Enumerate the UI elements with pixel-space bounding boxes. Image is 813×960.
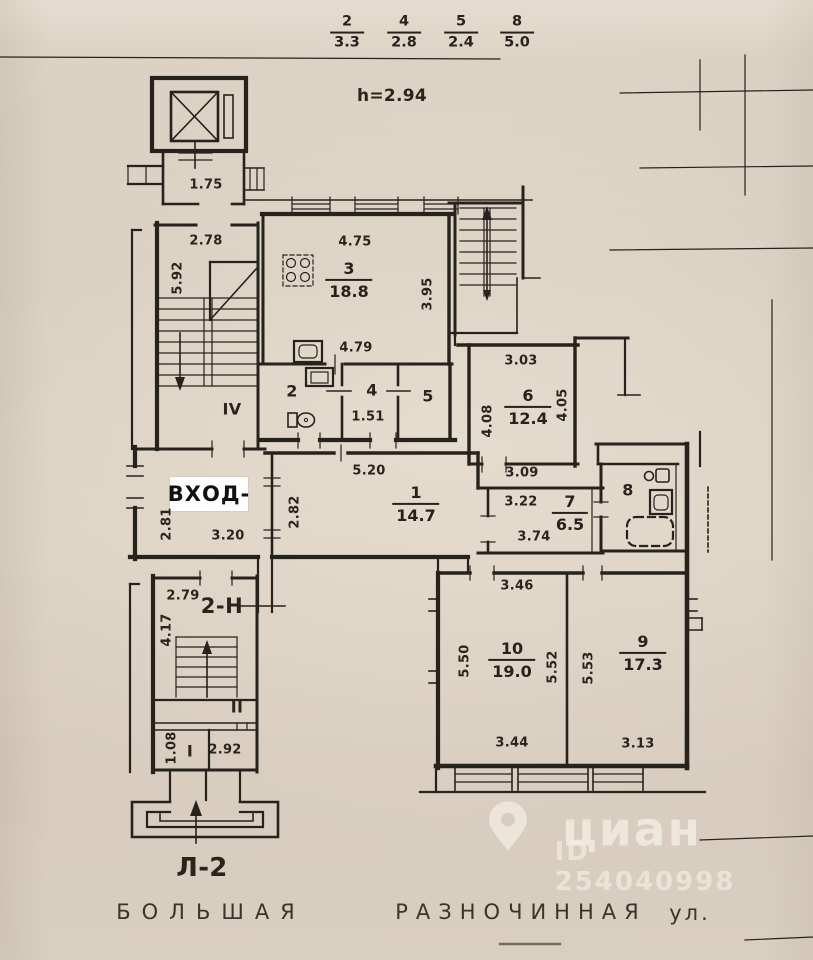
dim-room6-bottom: 3.09: [505, 466, 538, 481]
dim-room3-top: 4.75: [338, 235, 371, 250]
dim-room6-top: 3.03: [504, 354, 537, 369]
room6-number: 6: [504, 387, 551, 406]
apartment-fraction-3: 5 2.4: [444, 15, 478, 52]
rooms-9-10: [420, 566, 705, 792]
room3-area: 18.8: [325, 279, 372, 301]
floorplan-drawing: [0, 0, 813, 960]
room7-number: 7: [552, 493, 588, 512]
room8-number: 8: [622, 481, 633, 500]
rooms-2-4-5: [261, 364, 455, 448]
dim-main-stair-width: 2.78: [189, 234, 222, 249]
dim-service-stair-left: 4.17: [160, 613, 175, 646]
room10-number: 10: [488, 640, 535, 659]
room1-number: 1: [392, 484, 439, 503]
entrance-hall-walls: [127, 441, 478, 612]
dim-hall-top: 5.20: [352, 464, 385, 479]
dim-room4: 1.51: [351, 410, 384, 425]
top-window-band: [246, 197, 532, 214]
dim-room10-bottom: 3.44: [495, 736, 528, 751]
fraction-numerator: 8: [500, 15, 534, 32]
dim-room3-right: 3.95: [421, 277, 436, 310]
porch-steps: [132, 800, 278, 843]
elevator-shaft: [152, 78, 246, 168]
room1-label: 1 14.7: [392, 484, 439, 524]
dim-room9-bottom: 3.13: [621, 737, 654, 752]
room3-number: 3: [325, 260, 372, 279]
room7-label: 7 6.5: [552, 493, 588, 533]
room5-number: 5: [422, 387, 433, 406]
floor-mark-ii: II: [231, 698, 244, 717]
room9-number: 9: [619, 633, 666, 652]
dim-room7-top: 3.22: [504, 495, 537, 510]
dim-room10-left: 5.50: [458, 644, 473, 677]
porch-label-l2: Л-2: [176, 853, 227, 883]
fraction-denominator: 3.3: [330, 32, 364, 52]
dim-entry-i-width: 2.92: [208, 743, 241, 758]
dim-entry-i-depth: 1.08: [165, 731, 180, 764]
street-name-part2: РАЗНОЧИННАЯ: [395, 900, 646, 924]
fraction-numerator: 2: [330, 15, 364, 32]
floor-mark-iv: IV: [223, 400, 242, 419]
left-facade-lines: [130, 230, 141, 772]
dim-lift-lobby: 1.75: [189, 178, 222, 193]
apartment-fraction-2: 4 2.8: [387, 15, 421, 52]
dim-room7-bottom: 3.74: [517, 530, 550, 545]
main-stairwell: [155, 223, 258, 449]
street-name-part1: БОЛЬШАЯ: [116, 900, 306, 924]
fraction-denominator: 2.4: [444, 32, 478, 52]
room3-label: 3 18.8: [325, 260, 372, 300]
fraction-denominator: 5.0: [500, 32, 534, 52]
room4-number: 4: [366, 381, 377, 400]
entrance-label-sticker: ВХОД-: [170, 477, 248, 511]
dim-room10-right: 5.52: [546, 650, 561, 683]
room2-number: 2: [286, 382, 297, 401]
dim-room10-top: 3.46: [500, 579, 533, 594]
apartment-fraction-4: 8 5.0: [500, 15, 534, 52]
dim-service-stair-top: 2.79: [166, 589, 199, 604]
dim-entrance-left: 2.81: [160, 507, 175, 540]
room9-label: 9 17.3: [619, 633, 666, 673]
room6-area: 12.4: [504, 406, 551, 428]
dim-entrance-bottom: 3.20: [211, 529, 244, 544]
back-stairs: [449, 187, 540, 345]
room7-area: 6.5: [552, 512, 588, 534]
room6-label: 6 12.4: [504, 387, 551, 427]
room1-area: 14.7: [392, 503, 439, 525]
apartment-fraction-1: 2 3.3: [330, 15, 364, 52]
room9-area: 17.3: [619, 652, 666, 674]
floorplan-scan: 2 3.3 4 2.8 5 2.4 8 5.0 h=2.94 1.75 2.78…: [0, 0, 813, 960]
entrance-label: ВХОД-: [168, 482, 250, 506]
dim-room6-right: 4.05: [556, 388, 571, 421]
room10-label: 10 19.0: [488, 640, 535, 680]
dim-room3-bottom: 4.79: [339, 341, 372, 356]
room10-area: 19.0: [488, 659, 535, 681]
fraction-numerator: 4: [387, 15, 421, 32]
dim-main-stair-depth: 5.92: [171, 261, 186, 294]
fraction-denominator: 2.8: [387, 32, 421, 52]
room8-bathroom: [592, 432, 708, 768]
street-name-part3: ул.: [669, 901, 711, 925]
floor-mark-i: I: [187, 742, 193, 761]
dim-hall-left: 2.82: [288, 495, 303, 528]
unit-label-2n: 2-Н: [201, 594, 243, 618]
ceiling-height-note: h=2.94: [357, 86, 427, 106]
dim-room6-left: 4.08: [481, 404, 496, 437]
dim-room9-left: 5.53: [582, 651, 597, 684]
fraction-numerator: 5: [444, 15, 478, 32]
